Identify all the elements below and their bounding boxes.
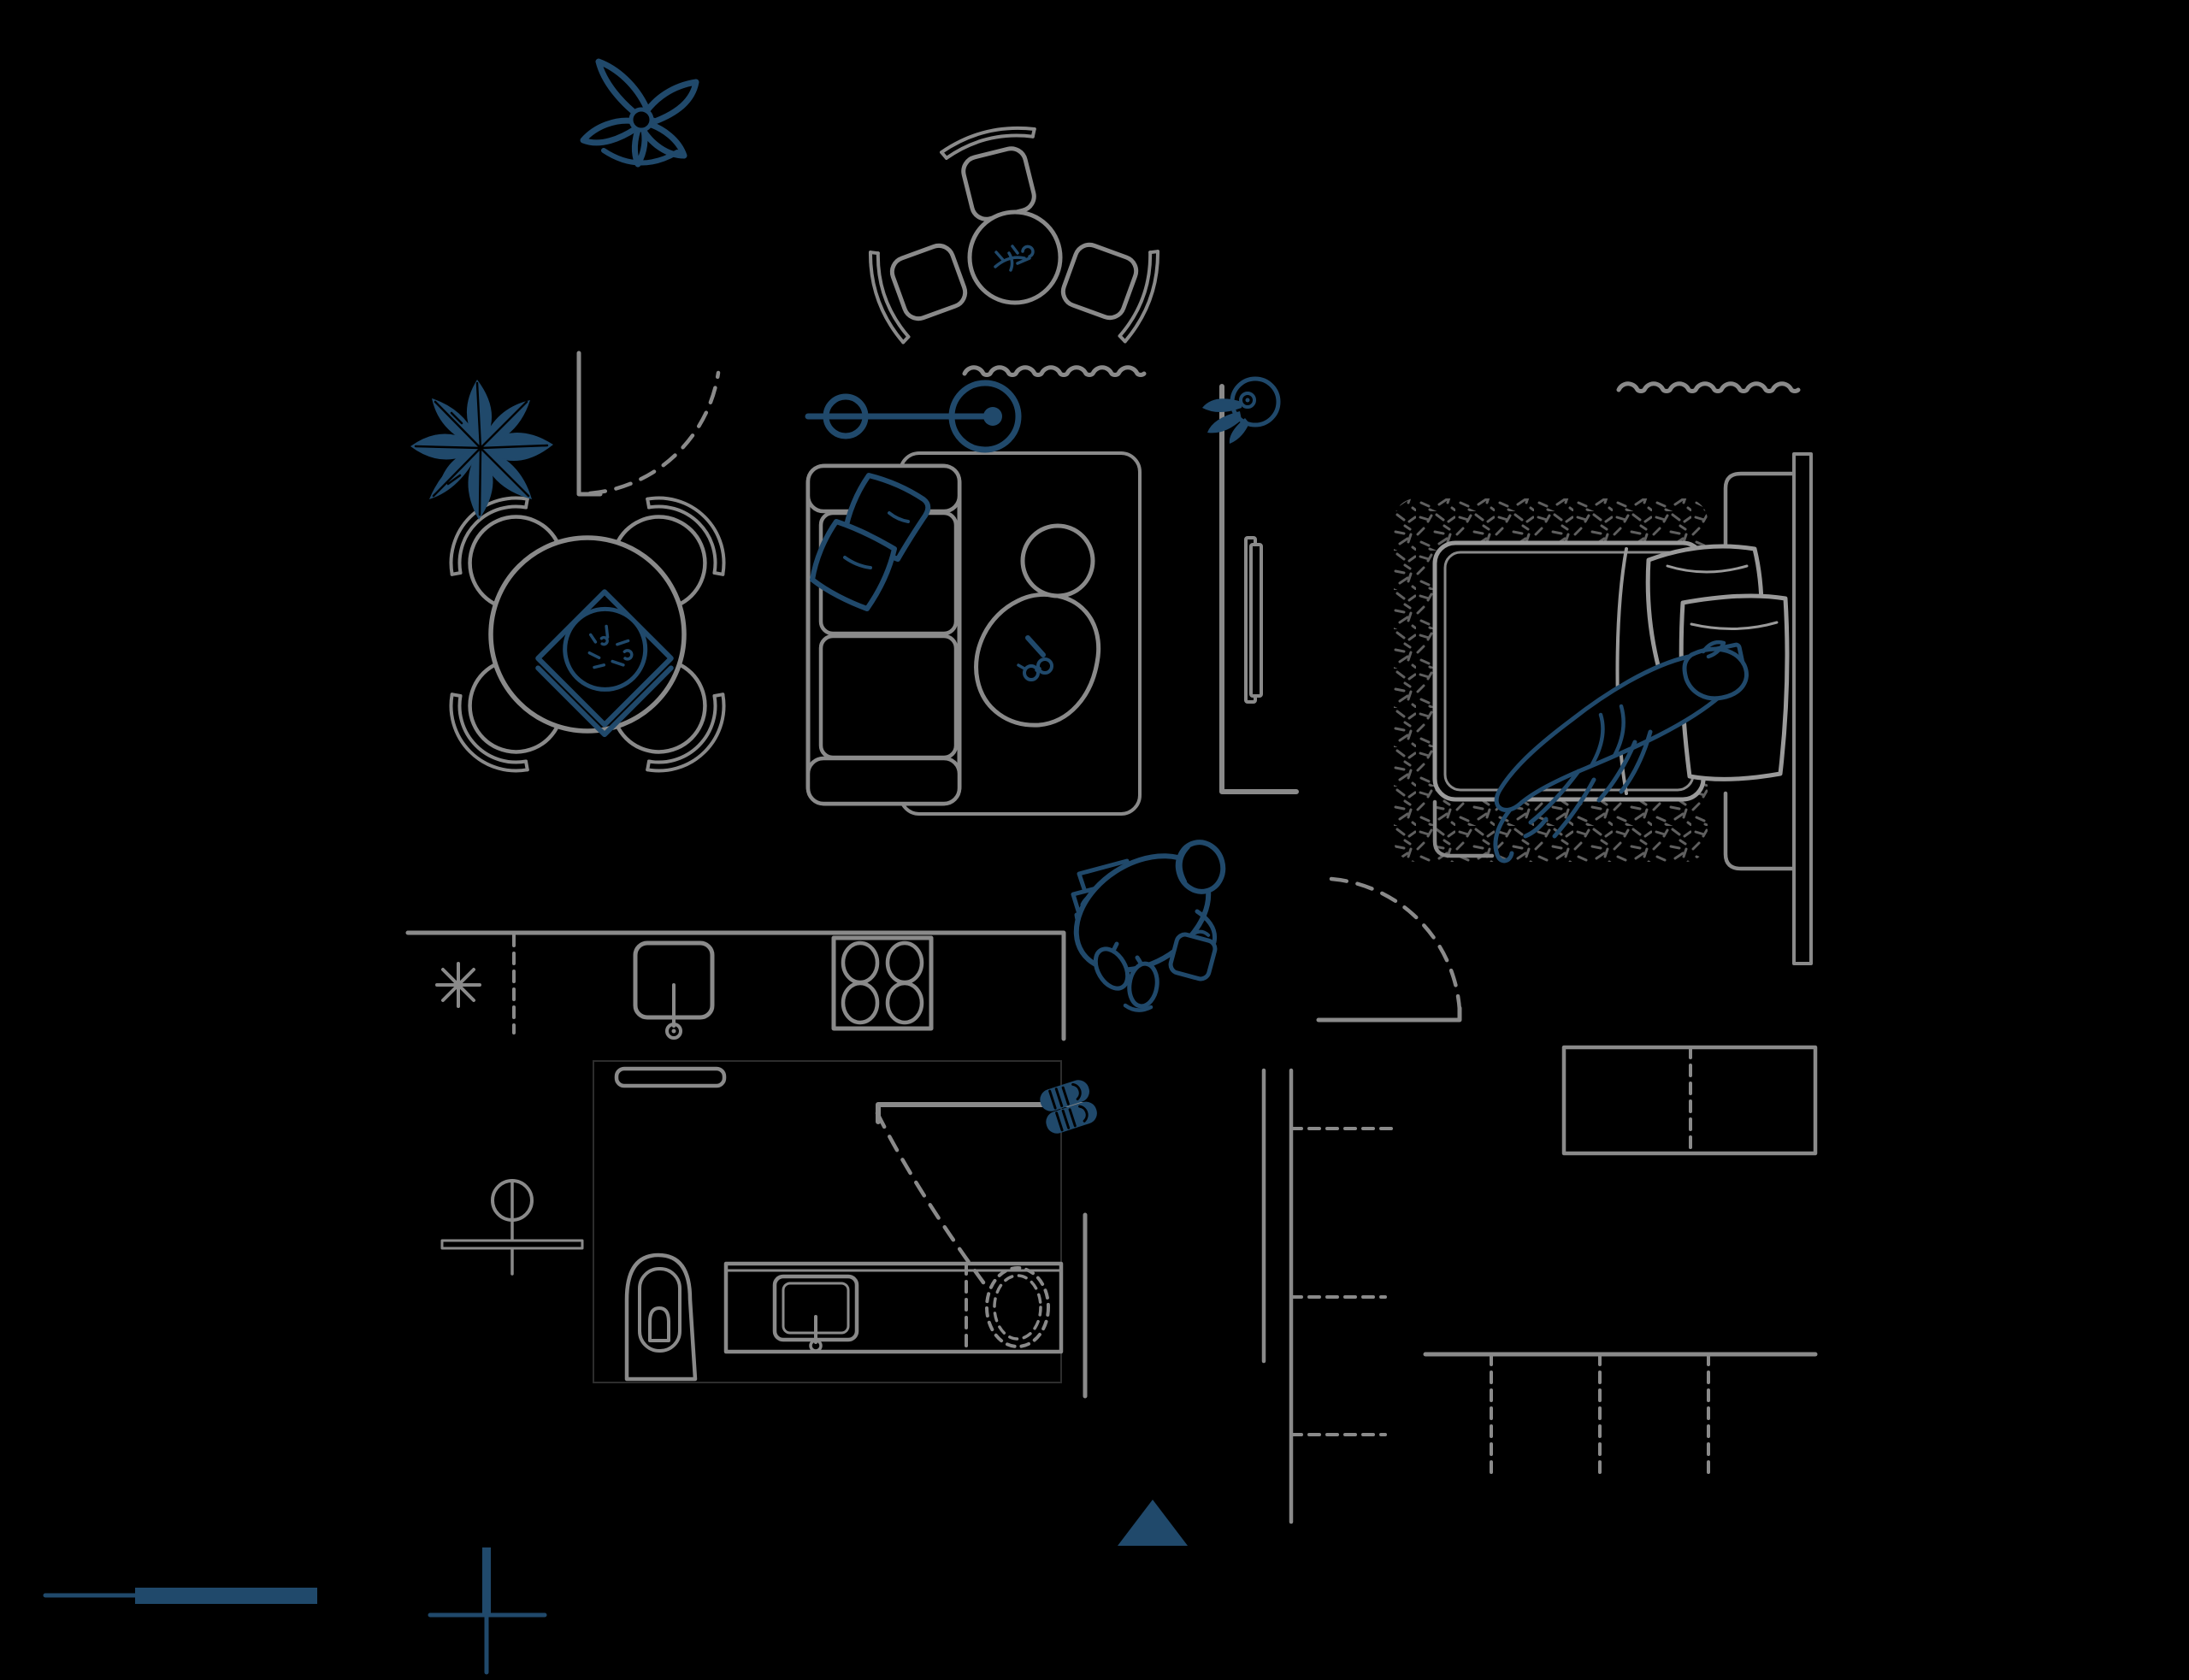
closet-shelf-dashes [1291,1129,1396,1435]
window-squiggle-living [965,368,1144,375]
wardrobe-top-right [1564,1047,1815,1153]
kitchen-counter-edge [408,933,1064,1039]
bedroom-door-leaf [1319,1008,1460,1020]
person-walking-with-bags [1055,833,1230,1011]
monstera-plant [410,380,553,520]
wardrobe-bottom-right [1425,1354,1815,1479]
floor-plan-drawing [0,0,2189,1680]
kitchen [408,933,1064,1039]
headboard [1794,454,1811,964]
bedroom-door-swing [1331,879,1460,1011]
hallway-and-closets [1264,879,1815,1522]
light-asterisk-symbol [437,964,480,1006]
door-leaf [579,353,600,494]
body [976,594,1099,725]
bedroom-door [1319,879,1460,1020]
bathroom-door-swing [877,1113,983,1282]
scale-bar [45,1588,317,1604]
washing-machine-outer-dashed [987,1268,1048,1347]
toilet-bowl [627,1255,695,1379]
entry-door-top-left [579,353,718,494]
washing-machine-inner-dashed [994,1276,1041,1339]
person-sitting-on-rug [976,526,1099,725]
north-triangle [1118,1500,1188,1546]
floor-plan-canvas [0,0,2189,1680]
sofa-armrest-bottom [808,758,959,804]
pendant-lamp-symbol [808,383,1018,450]
window-squiggle-bedroom [1619,384,1798,392]
floor-lamp-symbol [442,1181,582,1274]
door-swing-arc [590,373,718,493]
tv-screen [1251,545,1261,696]
toilet [627,1255,695,1379]
round-dining-table-with-4-chairs [433,480,743,790]
flower-in-round-vase [1202,379,1278,444]
faucet-dot [672,1029,676,1034]
head [1023,526,1093,596]
sofa-cushion-2 [821,636,956,757]
bathroom [442,1061,1086,1396]
bed-frame-top-corner [1726,474,1793,547]
lily-flower [583,62,696,164]
bath-mat [617,1069,724,1086]
wardrobe-dashed-dividers [1491,1354,1708,1479]
living-room-wall-with-tv [1222,386,1296,792]
vanity-laundry-counter [726,1264,1061,1352]
two-seat-sofa [808,466,959,804]
cafe-table-with-3-chairs [862,121,1166,345]
bed-frame-bottom-corner [1726,793,1793,869]
stove-4-burners [834,938,931,1029]
dog-head [1685,649,1746,699]
kitchen-sink [635,943,712,1038]
crosshair-marker [430,1547,545,1672]
